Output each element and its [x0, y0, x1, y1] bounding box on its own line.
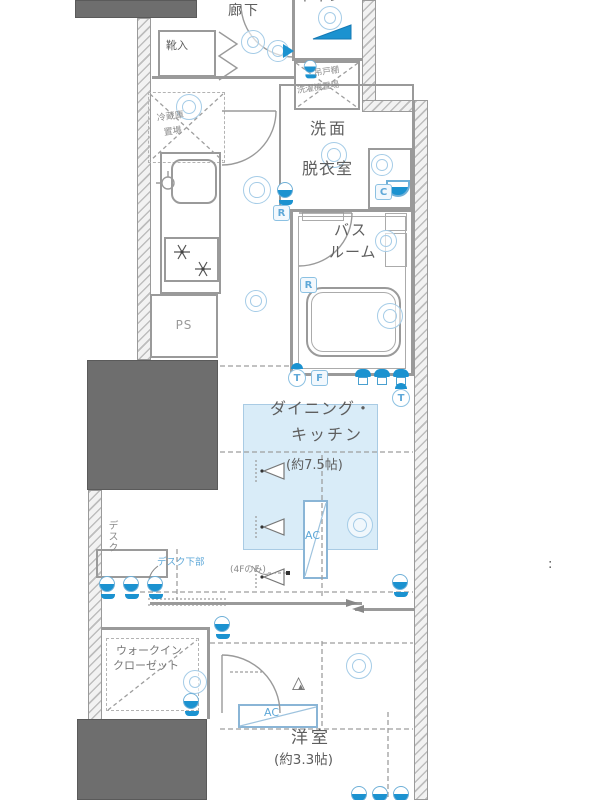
- outlet-icon-desk-3: [146, 576, 166, 599]
- badge-t2: T: [392, 389, 410, 407]
- bath-counter: [302, 212, 344, 221]
- washroom-label-2: 脱衣室: [302, 160, 353, 178]
- desk-under-label: デスク下部: [157, 558, 205, 568]
- kitchen-stove: [164, 237, 219, 282]
- floor-note-label: (4Fのみ): [230, 566, 266, 576]
- light-toilet-icon: [318, 6, 342, 30]
- sliding-door-rail-1: [150, 602, 362, 605]
- pipe-space-box: PS: [150, 294, 218, 358]
- light-wic-icon: [183, 670, 207, 694]
- outlet-icon-washwall: [276, 182, 296, 205]
- dk-label-2: キッチン: [291, 426, 363, 444]
- light-bedroom-icon: [346, 653, 372, 679]
- badge-f: F: [311, 370, 328, 386]
- dk-size-label: (約7.5帖): [286, 459, 343, 473]
- bedroom-label: 洋室: [291, 729, 331, 748]
- bath-mixer-icon: [377, 303, 403, 329]
- margin-colon-mark: :: [548, 558, 552, 572]
- bath-shelf-upper: [385, 213, 407, 231]
- badge-c-vanity: C: [375, 184, 392, 200]
- redacted-block-bottom: [77, 719, 207, 800]
- wall-left-upper: [137, 18, 151, 360]
- switch-icon-bath-1: [354, 369, 372, 387]
- desk-label: デスク: [106, 520, 117, 553]
- vent-triangle-inner-icon: ▲: [298, 684, 303, 692]
- outlet-icon-dk-right: [391, 574, 411, 597]
- shoe-cabinet-box: [158, 30, 216, 77]
- dk-label-1: ダイニング・: [270, 400, 372, 418]
- toilet-label: トイレ: [300, 0, 342, 5]
- wic-label-2: クローゼット: [113, 660, 179, 672]
- badge-t1: T: [288, 369, 306, 387]
- hallway-label: 廊下: [228, 4, 260, 19]
- light-dk-icon: [347, 512, 373, 538]
- pipe-space-label: PS: [176, 319, 193, 332]
- ac-label-bedroom: AC: [264, 707, 279, 719]
- outlet-icon-under-door: [213, 616, 233, 639]
- sliding-door-rail-2: [355, 608, 414, 611]
- ac-label-dk: AC: [305, 530, 320, 542]
- switch-icon-bath-2: [373, 369, 391, 387]
- bath-label-1: バス: [334, 222, 368, 239]
- badge-r-kitchen: R: [273, 205, 290, 221]
- shoe-cabinet-label: 靴入: [166, 40, 188, 52]
- redacted-block-middle: [87, 360, 218, 490]
- wall-wic-right: [207, 627, 210, 719]
- washroom-label-1: 洗面: [310, 120, 348, 138]
- badge-r-bath: R: [300, 277, 317, 293]
- floorplan: PS: [0, 0, 600, 800]
- outlet-icon-bottom-1: [350, 786, 370, 800]
- light-hallway-icon: [241, 30, 265, 54]
- light-kitchen2-icon: [245, 290, 267, 312]
- outlet-icon-bottom-3: [392, 786, 412, 800]
- light-kitchen-icon: [243, 176, 271, 204]
- light-vanity-icon: [371, 154, 393, 176]
- outlet-icon-desk-2: [122, 576, 142, 599]
- doorphone-arrow-icon: [283, 44, 294, 58]
- outlet-icon-wic: [182, 693, 202, 716]
- outlet-icon-desk-1: [98, 576, 118, 599]
- wall-right-main: [414, 100, 428, 800]
- kitchen-sink: [171, 159, 217, 204]
- wall-left-lower: [88, 490, 102, 720]
- redacted-block-top: [75, 0, 197, 18]
- wic-label-1: ウォークイン: [116, 645, 182, 657]
- bath-label-2: ルーム: [329, 244, 377, 261]
- wall-wic-top: [102, 627, 210, 630]
- outlet-icon-bottom-2: [371, 786, 391, 800]
- bath-fixture-icon: [375, 230, 397, 252]
- bedroom-size-label: (約3.3帖): [274, 753, 333, 768]
